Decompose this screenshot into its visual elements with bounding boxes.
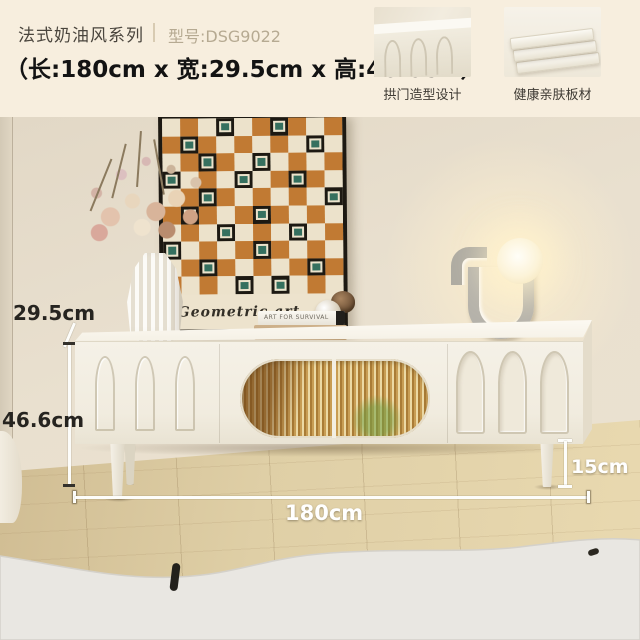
print-cell (306, 135, 324, 153)
print-cell (253, 206, 271, 224)
length-dimension-line (75, 496, 589, 499)
print-cell (271, 170, 289, 188)
arch-groove (135, 356, 155, 431)
leg-line-cap-bottom (558, 485, 572, 488)
print-cell-teal (311, 261, 323, 272)
print-cell (325, 205, 343, 223)
print-cell (235, 206, 253, 224)
door-divider (447, 344, 448, 443)
print-cell (289, 258, 307, 276)
mini-arch (384, 39, 402, 77)
print-cell (270, 118, 288, 136)
print-cell (271, 223, 289, 241)
book-spine-text: ART FOR SURVIVAL (264, 314, 329, 321)
print-cell-teal (239, 280, 251, 291)
print-cell (162, 119, 180, 137)
print-cell (306, 117, 324, 135)
print-cell (307, 170, 325, 188)
print-cell (289, 206, 307, 224)
print-cell (289, 241, 307, 259)
print-cell (217, 241, 235, 259)
feature-thumbnail-board (504, 7, 601, 77)
arch-panel (456, 351, 485, 434)
print-cell (325, 188, 343, 206)
print-cell (271, 206, 289, 224)
print-cell (289, 170, 307, 188)
print-cell (235, 171, 253, 189)
print-cell (271, 276, 289, 294)
print-cell-teal (256, 156, 268, 167)
print-cell (198, 118, 216, 136)
length-dimension-label: 180cm (285, 501, 363, 525)
print-cell (216, 153, 234, 171)
print-cell (307, 276, 325, 294)
print-cell (307, 205, 325, 223)
print-cell (253, 171, 271, 189)
print-cell-teal (309, 138, 321, 149)
book-end-cap (336, 311, 345, 325)
arch-groove (175, 356, 195, 431)
print-cell (325, 170, 343, 188)
door-divider (219, 344, 220, 443)
print-cell (235, 188, 253, 206)
dried-flowers (80, 135, 218, 267)
print-cell (307, 258, 325, 276)
print-cell (253, 241, 271, 259)
print-cell-teal (220, 227, 232, 238)
print-cell (181, 277, 199, 295)
print-cell (253, 259, 271, 277)
print-cell-teal (292, 174, 304, 185)
print-cell (217, 259, 235, 277)
print-cell (271, 188, 289, 206)
print-cell (235, 224, 253, 242)
print-cell (306, 153, 324, 171)
arch-groove (95, 356, 115, 431)
print-cell (324, 117, 342, 135)
print-cell-teal (256, 209, 268, 220)
print-cell (324, 152, 342, 170)
fluted-glass-door (240, 359, 430, 438)
print-cell (217, 206, 235, 224)
arch-panel (498, 351, 527, 434)
print-cell (325, 223, 343, 241)
print-cell (307, 188, 325, 206)
print-cell (235, 241, 253, 259)
print-cell-teal (275, 279, 287, 290)
rug (0, 522, 640, 640)
print-cell (325, 258, 343, 276)
mini-arch (410, 37, 428, 76)
product-image: 法式奶油风系列 型号:DSG9022 （长:180cm x 宽:29.5cm x… (0, 0, 640, 640)
mini-arch (436, 36, 454, 75)
print-cell (252, 135, 270, 153)
print-cell (234, 118, 252, 136)
length-line-tick-right (587, 491, 590, 503)
model-number: 型号:DSG9022 (168, 23, 281, 47)
print-cell (216, 136, 234, 154)
title-divider (153, 23, 155, 42)
print-cell-teal (256, 244, 268, 255)
print-cell (217, 277, 235, 295)
print-cell (235, 276, 253, 294)
thumb-cabinet-face (374, 27, 471, 77)
print-cell (216, 118, 234, 136)
print-cell (217, 224, 235, 242)
room-photo: Geometric art ART FOR SURVIVAL ONE LINE … (0, 117, 640, 640)
print-cell (234, 136, 252, 154)
book-spine-top: ART FOR SURVIVAL (258, 311, 345, 325)
print-cell-teal (219, 121, 231, 132)
leg-dimension-line (564, 441, 567, 487)
print-cell (289, 276, 307, 294)
leg-dimension-label: 15cm (571, 456, 629, 478)
print-cell (270, 153, 288, 171)
print-cell (217, 189, 235, 207)
print-cell (217, 171, 235, 189)
print-cell (325, 240, 343, 258)
arch-panel (540, 351, 569, 434)
print-cell (253, 188, 271, 206)
feature-label-board: 健康亲肤板材 (504, 84, 601, 103)
lamp-bulb (497, 238, 543, 284)
print-cell-teal (238, 174, 250, 185)
print-cell (235, 259, 253, 277)
print-cell-teal (292, 226, 304, 237)
wall-curve-detail (0, 431, 22, 523)
cabinet-front (75, 341, 583, 444)
print-cell (271, 241, 289, 259)
print-cell (252, 153, 270, 171)
print-cell-teal (328, 191, 340, 202)
print-cell (271, 258, 289, 276)
print-cell (270, 135, 288, 153)
print-cell (307, 223, 325, 241)
print-cell (253, 276, 271, 294)
print-cell (288, 118, 306, 136)
feature-thumbnail-arch (374, 7, 471, 77)
height-dimension-label: 46.6cm (2, 408, 84, 432)
height-line-tick-bottom (63, 484, 75, 487)
print-cell (252, 118, 270, 136)
print-cell (288, 135, 306, 153)
print-cell (253, 223, 271, 241)
print-cell (289, 223, 307, 241)
glass-door-split (332, 359, 336, 438)
print-cell (199, 277, 217, 295)
feature-label-arch: 拱门造型设计 (374, 84, 471, 103)
depth-dimension-label: 29.5cm (13, 301, 95, 325)
print-cell (307, 241, 325, 259)
series-title: 法式奶油风系列 (18, 21, 144, 46)
cabinet-side-panel (583, 320, 592, 444)
print-cell (234, 153, 252, 171)
print-cell (180, 118, 198, 136)
print-cell (289, 188, 307, 206)
print-cell (288, 153, 306, 171)
print-cell (324, 135, 342, 153)
print-cell-teal (273, 121, 285, 132)
